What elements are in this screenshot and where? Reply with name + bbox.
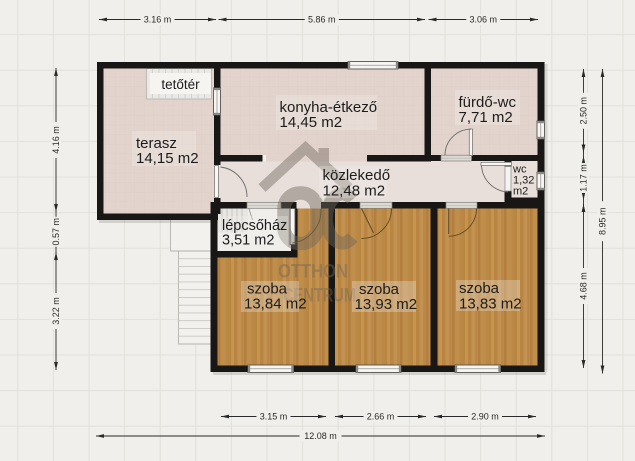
svg-text:4.16 m: 4.16 m [51,126,61,154]
svg-text:4.68 m: 4.68 m [579,272,589,300]
svg-text:szoba: szoba [459,280,500,297]
svg-text:2.50 m: 2.50 m [579,97,589,125]
svg-text:3.06 m: 3.06 m [469,15,497,25]
svg-text:14,15 m2: 14,15 m2 [136,150,199,167]
svg-text:tetőtér: tetőtér [161,77,200,92]
svg-text:3.22 m: 3.22 m [51,297,61,325]
svg-text:0.57 m: 0.57 m [51,218,61,246]
svg-text:13,83 m2: 13,83 m2 [459,296,522,313]
svg-text:13,93 m2: 13,93 m2 [355,296,418,313]
svg-text:közlekedő: közlekedő [323,167,391,184]
svg-text:2.90 m: 2.90 m [471,412,499,422]
svg-text:3.16 m: 3.16 m [144,15,172,25]
svg-text:3.15 m: 3.15 m [260,412,288,422]
svg-text:5.86 m: 5.86 m [308,15,336,25]
svg-text:12.08 m: 12.08 m [304,431,337,441]
svg-text:8.95 m: 8.95 m [598,207,608,235]
svg-text:12,48 m2: 12,48 m2 [323,183,386,200]
svg-text:1.17 m: 1.17 m [579,164,589,192]
svg-text:13,84 m2: 13,84 m2 [244,296,307,313]
svg-text:m2: m2 [513,186,528,198]
svg-text:14,45 m2: 14,45 m2 [280,114,343,131]
svg-text:7,71 m2: 7,71 m2 [459,109,513,126]
svg-text:3,51 m2: 3,51 m2 [222,233,274,249]
svg-text:OTTHON: OTTHON [278,262,348,283]
svg-text:2.66 m: 2.66 m [367,412,395,422]
